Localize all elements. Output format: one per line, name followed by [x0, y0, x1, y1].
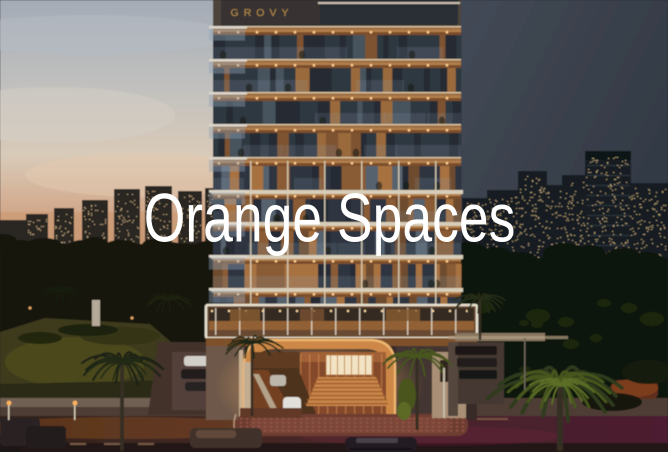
svg-text:Orange Spaces: Orange Spaces	[144, 180, 516, 257]
svg-text:GROVY: GROVY	[231, 7, 294, 19]
